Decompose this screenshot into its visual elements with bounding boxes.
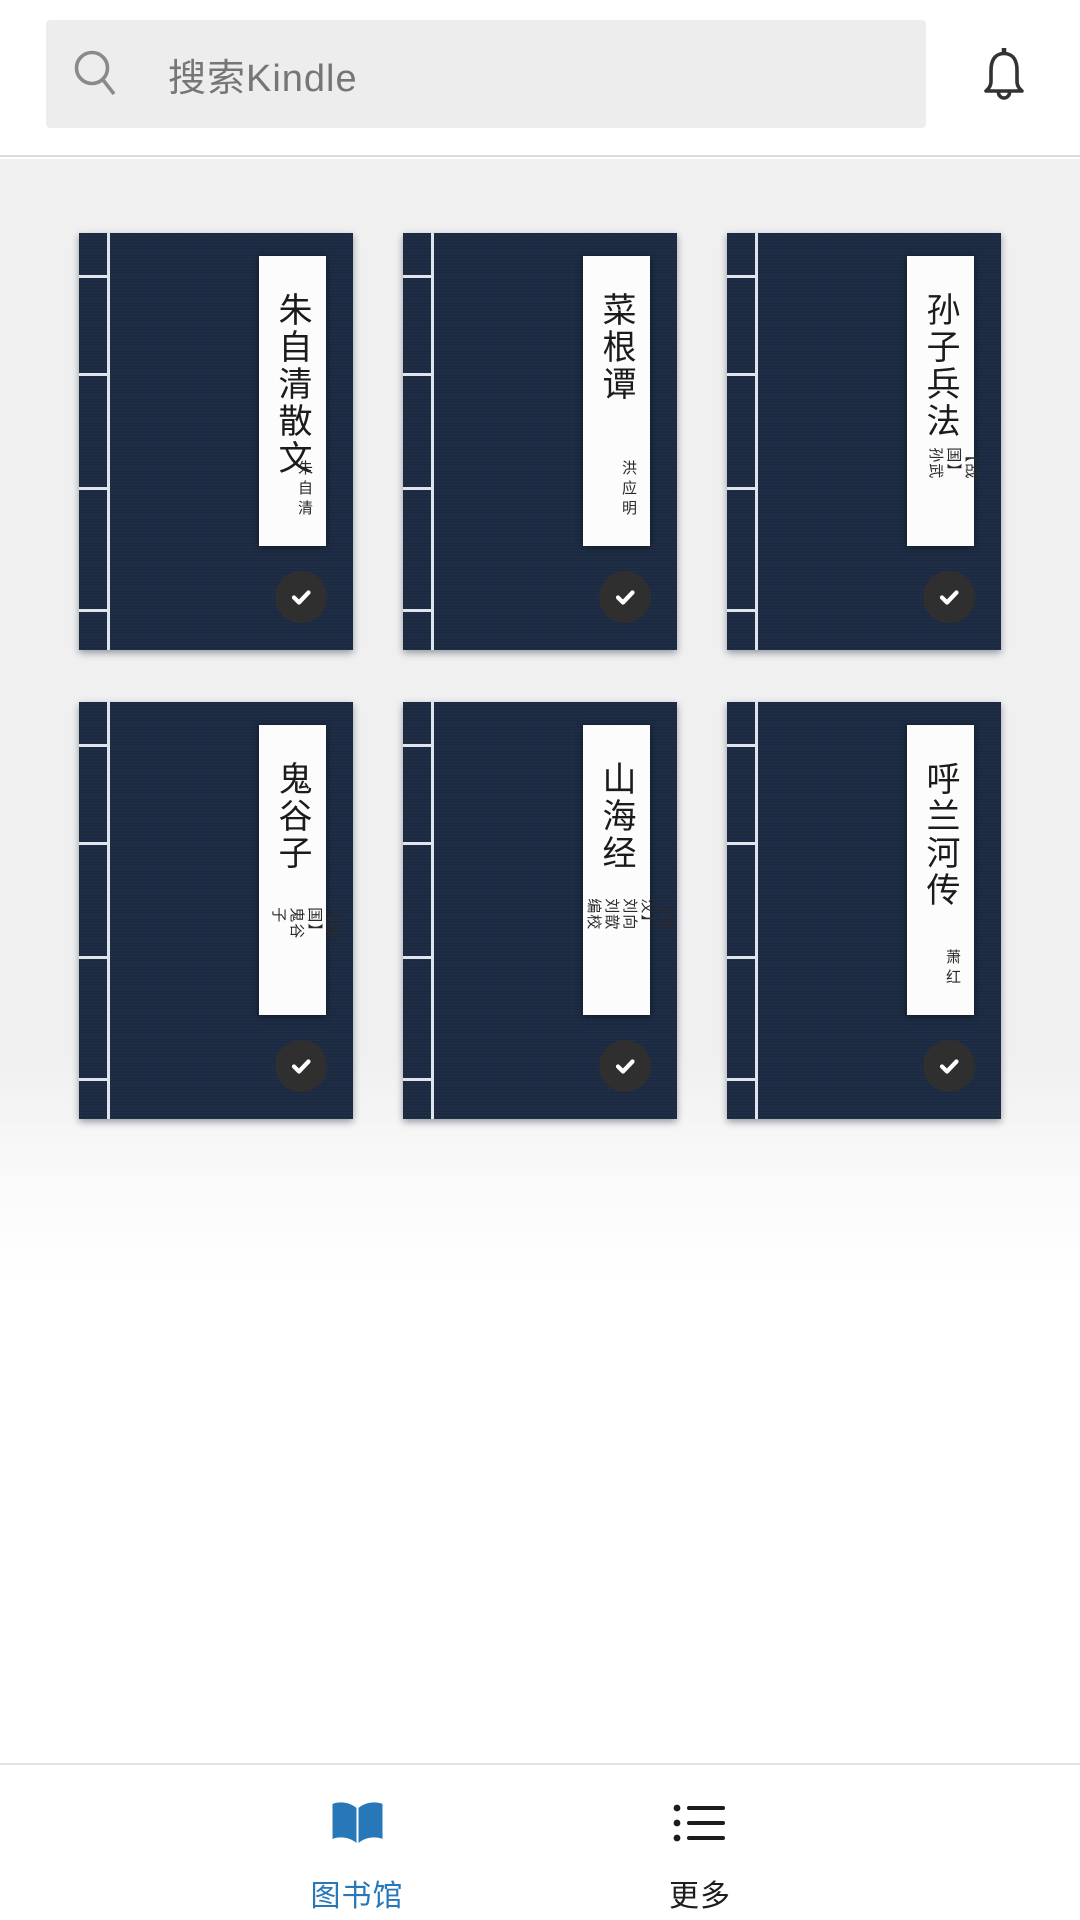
downloaded-badge — [599, 571, 651, 623]
book-card[interactable]: 山海经 【西汉】刘向 刘歆 编校 — [403, 702, 677, 1119]
book-stitch-line — [79, 1078, 107, 1081]
book-stitch-line — [403, 842, 431, 845]
book-spine-line — [107, 233, 110, 650]
book-title-tag: 鬼谷子 【战国】鬼谷子 — [259, 725, 326, 1015]
downloaded-badge — [923, 1040, 975, 1092]
downloaded-badge — [923, 571, 975, 623]
book-stitch-line — [727, 956, 755, 959]
book-stitch-line — [403, 373, 431, 376]
book-stitch-line — [403, 956, 431, 959]
book-stitch-line — [727, 487, 755, 490]
list-icon — [672, 1799, 728, 1847]
book-card[interactable]: 菜根谭 洪应明 — [403, 233, 677, 650]
book-card[interactable]: 鬼谷子 【战国】鬼谷子 — [79, 702, 353, 1119]
book-title-tag: 孙子兵法 【战国】孙武 — [907, 256, 974, 546]
book-card[interactable]: 孙子兵法 【战国】孙武 — [727, 233, 1001, 650]
check-icon — [935, 1052, 963, 1080]
book-title: 菜根谭 — [592, 292, 641, 403]
open-book-icon — [329, 1799, 385, 1847]
search-placeholder: 搜索Kindle — [168, 47, 358, 102]
header: 搜索Kindle — [0, 0, 1080, 157]
book-stitch-line — [727, 1078, 755, 1081]
book-title: 朱自清散文 — [268, 292, 317, 477]
book-title: 鬼谷子 — [268, 761, 317, 872]
book-card[interactable]: 朱自清散文 朱自清 — [79, 233, 353, 650]
book-spine-line — [107, 702, 110, 1119]
tab-more-label: 更多 — [669, 1871, 731, 1915]
book-title: 孙子兵法 — [916, 292, 965, 440]
check-icon — [611, 1052, 639, 1080]
downloaded-badge — [599, 1040, 651, 1092]
book-title-tag: 菜根谭 洪应明 — [583, 256, 650, 546]
check-icon — [287, 1052, 315, 1080]
book-title: 呼兰河传 — [916, 761, 965, 909]
book-spine-line — [431, 233, 434, 650]
book-stitch-line — [403, 609, 431, 612]
book-stitch-line — [403, 744, 431, 747]
book-stitch-line — [727, 842, 755, 845]
book-card[interactable]: 呼兰河传 萧红 — [727, 702, 1001, 1119]
book-spine-line — [755, 702, 758, 1119]
book-stitch-line — [403, 487, 431, 490]
book-title-tag: 呼兰河传 萧红 — [907, 725, 974, 1015]
book-spine-line — [755, 233, 758, 650]
book-stitch-line — [79, 956, 107, 959]
downloaded-badge — [275, 571, 327, 623]
book-stitch-line — [79, 487, 107, 490]
bottom-nav: 图书馆 更多 — [0, 1763, 1080, 1920]
downloaded-badge — [275, 1040, 327, 1092]
search-icon — [72, 48, 122, 100]
book-stitch-line — [403, 1078, 431, 1081]
search-input[interactable]: 搜索Kindle — [46, 20, 926, 128]
book-author: 【西汉】刘向 刘歆 编校 — [584, 898, 674, 932]
book-stitch-line — [403, 275, 431, 278]
check-icon — [611, 583, 639, 611]
library-content: 朱自清散文 朱自清 菜根谭 洪应明 — [0, 159, 1080, 1763]
book-stitch-line — [79, 275, 107, 278]
book-stitch-line — [79, 842, 107, 845]
book-stitch-line — [79, 609, 107, 612]
book-stitch-line — [79, 373, 107, 376]
book-title: 山海经 — [592, 761, 641, 872]
book-title-tag: 朱自清散文 朱自清 — [259, 256, 326, 546]
book-stitch-line — [727, 609, 755, 612]
book-author: 【战国】孙武 — [926, 447, 980, 481]
book-spine-line — [431, 702, 434, 1119]
book-title-tag: 山海经 【西汉】刘向 刘歆 编校 — [583, 725, 650, 1015]
book-author: 【战国】鬼谷子 — [269, 907, 341, 941]
tab-library-label: 图书馆 — [311, 1871, 404, 1915]
book-stitch-line — [79, 744, 107, 747]
book-stitch-line — [727, 275, 755, 278]
book-stitch-line — [727, 373, 755, 376]
book-author: 洪应明 — [618, 460, 639, 520]
tab-library[interactable]: 图书馆 — [311, 1765, 404, 1920]
kindle-library-screen: 搜索Kindle 朱自清散文 朱自清 — [0, 0, 1080, 1920]
book-author: 朱自清 — [294, 460, 315, 520]
tab-more[interactable]: 更多 — [669, 1765, 731, 1920]
book-stitch-line — [727, 744, 755, 747]
notifications-button[interactable] — [976, 42, 1032, 106]
check-icon — [287, 583, 315, 611]
book-author: 萧红 — [942, 949, 963, 989]
book-grid: 朱自清散文 朱自清 菜根谭 洪应明 — [0, 159, 1080, 1119]
bell-icon — [978, 45, 1030, 103]
check-icon — [935, 583, 963, 611]
